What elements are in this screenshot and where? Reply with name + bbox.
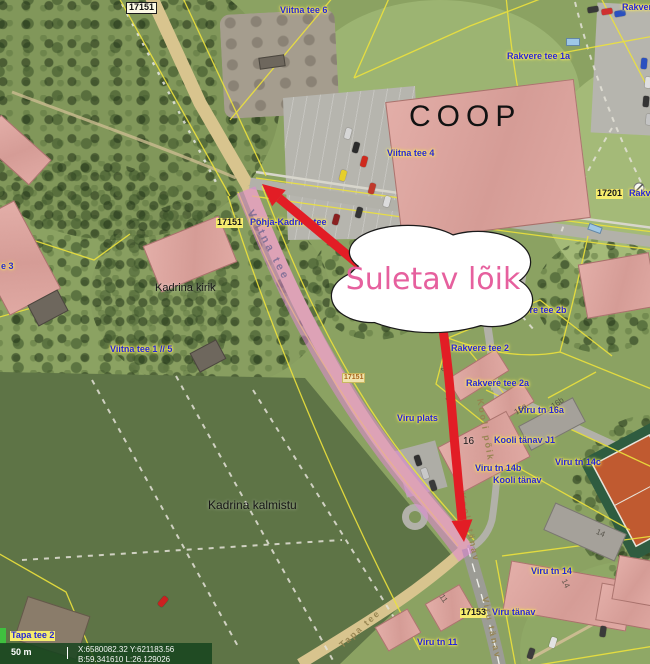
annotation-layer bbox=[0, 0, 650, 664]
scale-distance: 50 m bbox=[11, 647, 32, 657]
scalebar-tab bbox=[0, 628, 6, 644]
scale-tick bbox=[67, 647, 68, 659]
scalebar: 50 m X:6580082.32 Y:621183.56 B:59.34161… bbox=[0, 643, 212, 664]
closure-arrow-south bbox=[440, 310, 473, 542]
coords-xy: X:6580082.32 Y:621183.56 bbox=[78, 645, 174, 655]
closed-section-label: Suletav lõik bbox=[344, 262, 522, 297]
cursor-coordinates: X:6580082.32 Y:621183.56 B:59.341610 L:2… bbox=[78, 645, 174, 664]
map-canvas[interactable]: 17151Viitna tee 6RakvereRakvere tee 1aCO… bbox=[0, 0, 650, 664]
coords-bl: B:59.341610 L:26.129026 bbox=[78, 655, 174, 664]
